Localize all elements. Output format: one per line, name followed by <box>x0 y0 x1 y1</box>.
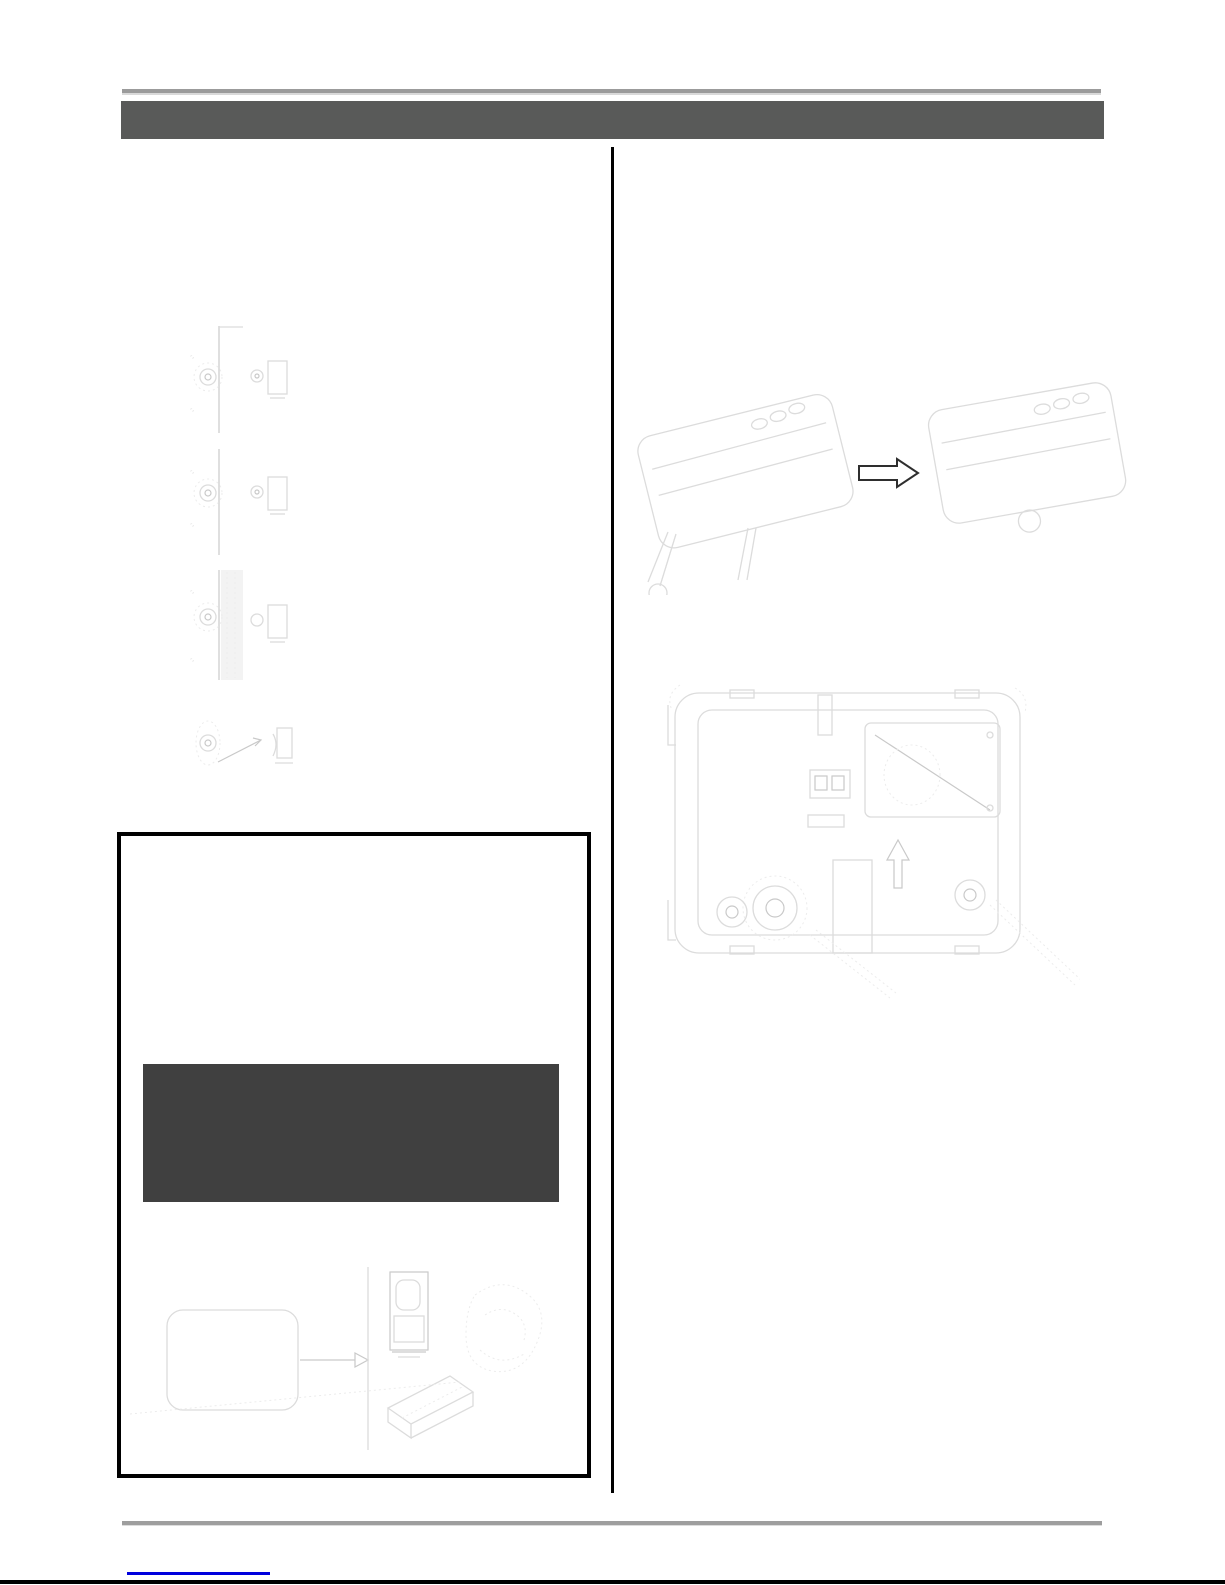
screw-heads-sketch <box>717 876 985 940</box>
top-rule <box>122 89 1101 95</box>
figure-stand-removal <box>620 360 1140 595</box>
right-arrow-icon <box>859 459 918 487</box>
latch-step-4-illustration <box>196 721 293 765</box>
column-divider <box>611 147 614 1493</box>
notice-dark-panel <box>143 1064 559 1202</box>
stand-legs-sketch <box>648 528 756 595</box>
left-column-step-illustrations <box>185 320 305 780</box>
small-right-arrow-icon <box>355 1353 368 1367</box>
screwdriver-sketch <box>670 685 1080 998</box>
up-arrow-icon <box>887 840 909 888</box>
remote-sensor-sketch <box>390 1272 428 1357</box>
figure-bottom-view <box>660 680 1080 1000</box>
device-with-stand-sketch <box>635 391 857 551</box>
label-plate-sketch <box>865 723 1000 817</box>
page-bottom-edge <box>0 1580 1225 1584</box>
bottom-rule <box>122 1521 1102 1526</box>
device-without-stand-sketch <box>926 380 1132 546</box>
screen-outline-sketch <box>167 1310 298 1410</box>
footer-link[interactable] <box>127 1572 270 1575</box>
notice-illustration <box>130 1240 570 1465</box>
hand-sketch <box>466 1285 542 1372</box>
section-header-bar <box>121 101 1104 139</box>
latch-step-1-illustration <box>191 326 288 433</box>
document-page <box>0 0 1225 1585</box>
latch-step-3-illustration <box>191 570 288 680</box>
latch-step-2-illustration <box>191 449 288 555</box>
battery-box-sketch <box>130 1376 473 1438</box>
